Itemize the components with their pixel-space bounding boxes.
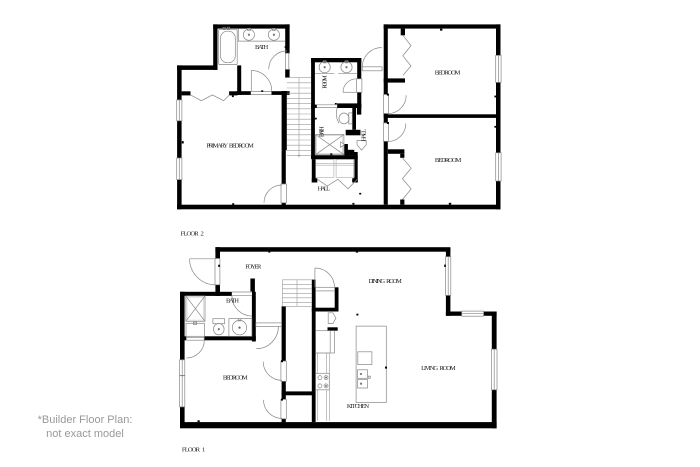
svg-text:BEDROOM: BEDROOM [435, 157, 462, 164]
svg-text:PRIMARY BEDROOM: PRIMARY BEDROOM [206, 143, 254, 150]
svg-text:BATH: BATH [318, 126, 325, 137]
svg-text:HALL: HALL [318, 185, 331, 192]
svg-text:BEDROOM: BEDROOM [223, 374, 248, 381]
svg-text:FLOOR 1: FLOOR 1 [182, 446, 205, 453]
svg-text:BATH: BATH [255, 44, 269, 51]
svg-text:KITCHEN: KITCHEN [347, 403, 369, 410]
svg-text:BEDROOM: BEDROOM [435, 69, 461, 76]
svg-text:BATH: BATH [226, 298, 239, 305]
svg-text:ROOM: ROOM [322, 75, 329, 89]
svg-text:LIVING ROOM: LIVING ROOM [421, 365, 456, 372]
svg-text:FLOOR 2: FLOOR 2 [181, 230, 204, 237]
svg-text:FOYER: FOYER [245, 263, 262, 270]
svg-text:DINING ROOM: DINING ROOM [368, 278, 402, 285]
svg-text:HALL: HALL [360, 129, 367, 142]
